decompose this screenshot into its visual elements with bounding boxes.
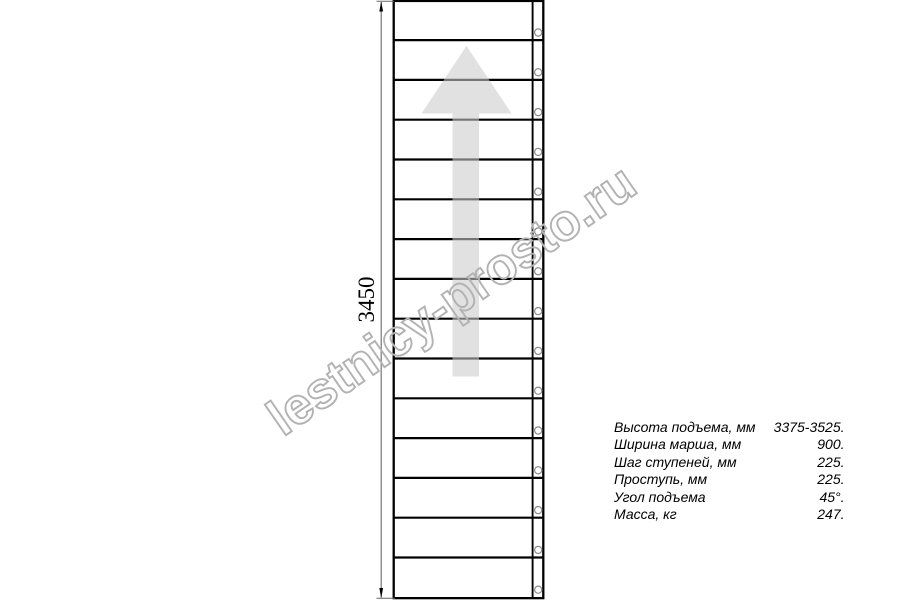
svg-text:3450: 3450 bbox=[354, 277, 379, 323]
